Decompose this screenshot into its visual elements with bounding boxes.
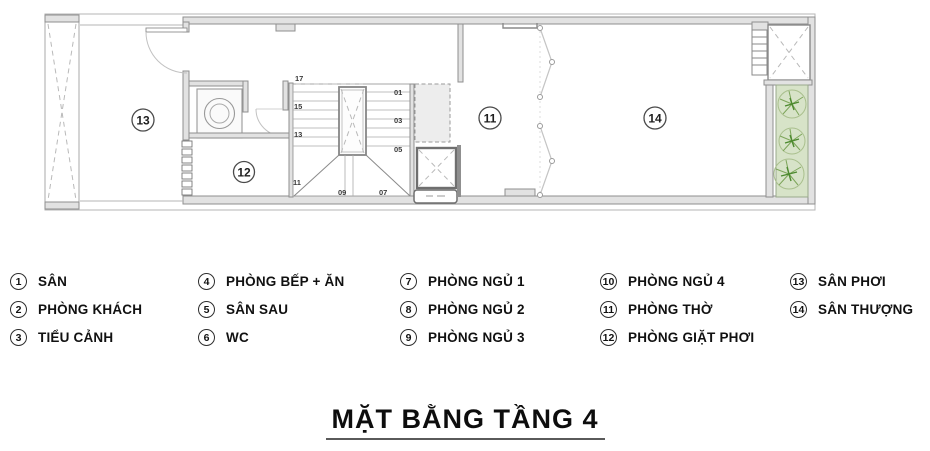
service-shaft: [414, 84, 459, 203]
svg-text:09: 09: [338, 188, 346, 197]
svg-text:11: 11: [293, 178, 301, 187]
skylight-void: [764, 25, 812, 85]
room-label-11: 11: [479, 107, 501, 129]
legend-number-badge: 11: [600, 301, 617, 318]
room11-left-wall: [458, 24, 463, 82]
laundry-left-wall: [182, 22, 192, 195]
svg-text:11: 11: [484, 112, 497, 126]
roof-ladder-icon: [752, 22, 768, 75]
legend-label: SÂN THƯỢNG: [818, 302, 913, 317]
room12-wall: [189, 133, 289, 138]
legend-item: 9 PHÒNG NGỦ 3: [400, 329, 525, 346]
staircase: [289, 83, 414, 197]
legend-label: SÂN PHƠI: [818, 274, 886, 289]
planter-strip: [766, 85, 808, 197]
legend-label: PHÒNG NGỦ 2: [428, 302, 525, 317]
svg-text:03: 03: [394, 116, 402, 125]
legend-number-badge: 2: [10, 301, 27, 318]
room-label-13: 13: [132, 109, 154, 131]
legend-column-5: 13 SÂN PHƠI 14 SÂN THƯỢNG: [790, 273, 913, 318]
room-label-14: 14: [644, 107, 666, 129]
legend-item: 11 PHÒNG THỜ: [600, 301, 754, 318]
legend-item: 14 SÂN THƯỢNG: [790, 301, 913, 318]
legend-number-badge: 10: [600, 273, 617, 290]
bottom-wall: [183, 196, 815, 204]
legend-number-badge: 7: [400, 273, 417, 290]
svg-text:14: 14: [648, 112, 662, 126]
legend-label: PHÒNG BẾP + ĂN: [226, 274, 344, 289]
legend-label: SÂN SAU: [226, 302, 288, 317]
svg-text:05: 05: [394, 145, 402, 154]
legend-item: 3 TIỂU CẢNH: [10, 329, 142, 346]
legend-number-badge: 6: [198, 329, 215, 346]
svg-text:17: 17: [295, 74, 303, 83]
legend-item: 5 SÂN SAU: [198, 301, 344, 318]
legend-number-badge: 14: [790, 301, 807, 318]
svg-text:15: 15: [294, 102, 302, 111]
legend-item: 7 PHÒNG NGỦ 1: [400, 273, 525, 290]
legend-number-badge: 5: [198, 301, 215, 318]
legend-label: PHÒNG GIẶT PHƠI: [628, 330, 754, 345]
legend-column-2: 4 PHÒNG BẾP + ĂN 5 SÂN SAU 6 WC: [198, 273, 344, 346]
title-block: MẶT BẰNG TẦNG 4: [0, 404, 930, 440]
legend-label: PHÒNG NGỦ 4: [628, 274, 725, 289]
legend-label: SÂN: [38, 274, 67, 289]
legend-number-badge: 9: [400, 329, 417, 346]
legend-label: TIỂU CẢNH: [38, 330, 113, 345]
room-label-12: 12: [234, 162, 255, 183]
washing-machine-icon: [197, 89, 242, 138]
legend-item: 4 PHÒNG BẾP + ĂN: [198, 273, 344, 290]
legend-item: 8 PHÒNG NGỦ 2: [400, 301, 525, 318]
svg-text:13: 13: [294, 130, 302, 139]
legend-number-badge: 8: [400, 301, 417, 318]
legend-column-1: 1 SÂN 2 PHÒNG KHÁCH 3 TIỂU CẢNH: [10, 273, 142, 346]
legend-label: PHÒNG KHÁCH: [38, 302, 142, 317]
svg-text:07: 07: [379, 188, 387, 197]
legend-number-badge: 12: [600, 329, 617, 346]
legend-number-badge: 4: [198, 273, 215, 290]
legend-item: 12 PHÒNG GIẶT PHƠI: [600, 329, 754, 346]
svg-text:01: 01: [394, 88, 402, 97]
floor-plan-drawing: 13 12 11 14 17 15 13 11 09 07 05 03 01: [0, 0, 930, 260]
legend-number-badge: 3: [10, 329, 27, 346]
svg-text:12: 12: [237, 166, 251, 180]
legend-item: 6 WC: [198, 329, 344, 346]
svg-text:13: 13: [136, 114, 150, 128]
page-title: MẶT BẰNG TẦNG 4: [326, 404, 605, 440]
legend-label: WC: [226, 330, 249, 345]
legend-item: 1 SÂN: [10, 273, 142, 290]
legend-item: 2 PHÒNG KHÁCH: [10, 301, 142, 318]
left-void-shaft: [45, 15, 79, 209]
legend-label: PHÒNG NGỦ 1: [428, 274, 525, 289]
legend-column-4: 10 PHÒNG NGỦ 4 11 PHÒNG THỜ 12 PHÒNG GIẶ…: [600, 273, 754, 346]
top-wall: [183, 17, 815, 24]
legend-item: 10 PHÒNG NGỦ 4: [600, 273, 754, 290]
legend-label: PHÒNG THỜ: [628, 302, 713, 317]
room13-boundary: [80, 25, 183, 201]
door-room13: [146, 28, 187, 73]
column-bump-bottom: [505, 189, 535, 196]
legend-number-badge: 13: [790, 273, 807, 290]
legend-label: PHÒNG NGỦ 3: [428, 330, 525, 345]
folding-door: [538, 26, 555, 198]
legend-column-3: 7 PHÒNG NGỦ 1 8 PHÒNG NGỦ 2 9 PHÒNG NGỦ …: [400, 273, 525, 346]
laundry-nook: [189, 81, 288, 138]
legend-item: 13 SÂN PHƠI: [790, 273, 913, 290]
legend-number-badge: 1: [10, 273, 27, 290]
column-bump-top: [276, 24, 295, 31]
counter-icon: [414, 190, 457, 203]
